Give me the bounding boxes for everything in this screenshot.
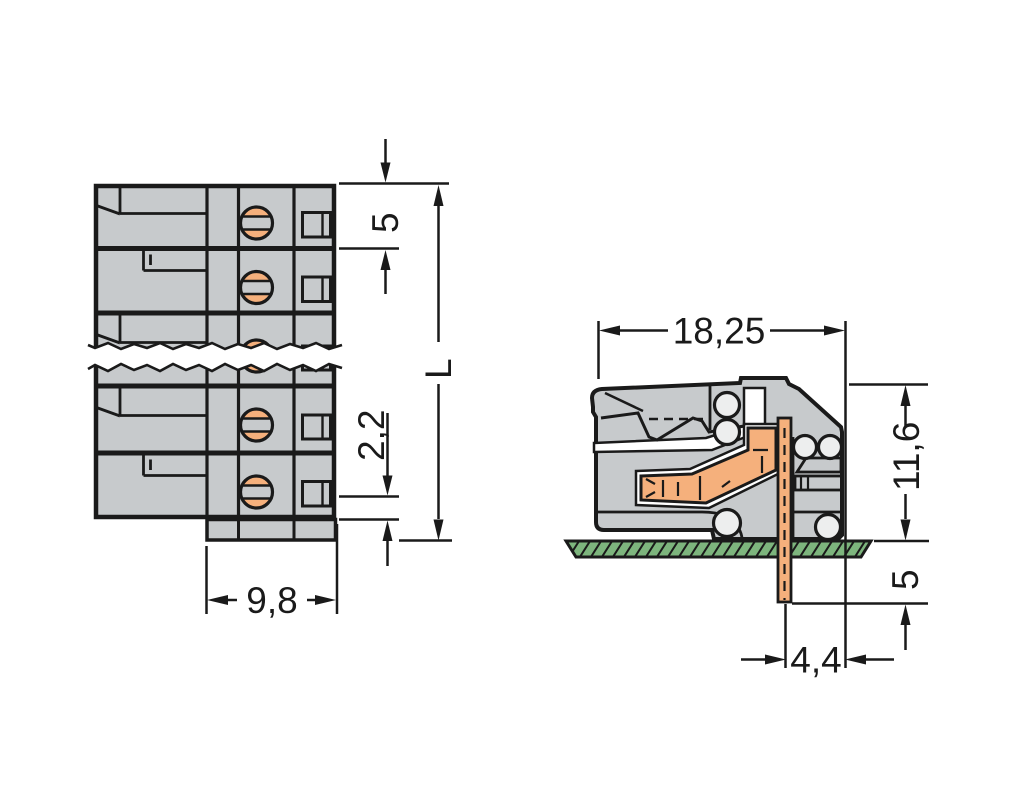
dim-total-length: L: [418, 358, 459, 379]
arrowhead: [901, 520, 911, 541]
dim-depth: 9,8: [246, 580, 297, 621]
arrowhead: [381, 250, 391, 270]
front-view: 5 L 2,2 9,8: [88, 139, 459, 621]
arrowhead: [383, 476, 393, 496]
arrowhead: [901, 385, 911, 406]
arrowhead: [383, 521, 393, 542]
arrowhead: [765, 655, 786, 665]
technical-drawing: 5 L 2,2 9,8: [0, 0, 1024, 798]
arrowhead: [845, 655, 866, 665]
arrowhead: [381, 163, 391, 183]
drawing-canvas: 5 L 2,2 9,8: [0, 0, 1024, 798]
arrowhead: [207, 595, 228, 605]
dim-pin-length: 5: [885, 569, 926, 590]
side-view: 18,25 11,6 5 4,4: [556, 311, 929, 681]
break-lines: [88, 343, 342, 371]
arrowhead: [434, 520, 444, 541]
arrowhead: [315, 595, 336, 605]
front-bottom-extension: [207, 520, 336, 541]
arrowhead: [434, 185, 444, 206]
arrowhead: [901, 605, 911, 626]
dim-pole-pitch: 5: [365, 212, 406, 233]
arrowhead: [599, 326, 620, 336]
dim-total-depth: 18,25: [673, 311, 766, 352]
front-view-body: [95, 186, 336, 540]
pcb-board: [556, 538, 878, 560]
dim-rear-offset: 2,2: [351, 410, 392, 461]
arrowhead: [824, 326, 845, 336]
dim-height-above-board: 11,6: [886, 422, 927, 491]
dim-pin-to-edge: 4,4: [790, 640, 841, 681]
front-housing-outline: [96, 186, 334, 517]
